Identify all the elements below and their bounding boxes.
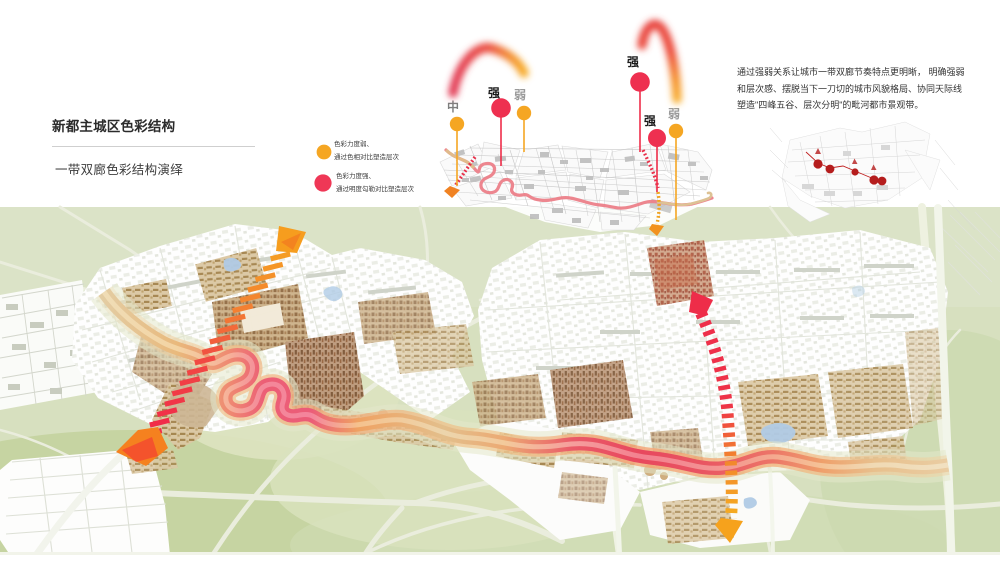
- svg-text:弱: 弱: [668, 106, 680, 121]
- svg-text:强: 强: [488, 86, 500, 100]
- svg-text:强: 强: [627, 55, 639, 69]
- svg-text:中: 中: [447, 99, 459, 114]
- svg-text:强: 强: [644, 114, 656, 128]
- svg-text:弱: 弱: [514, 87, 526, 102]
